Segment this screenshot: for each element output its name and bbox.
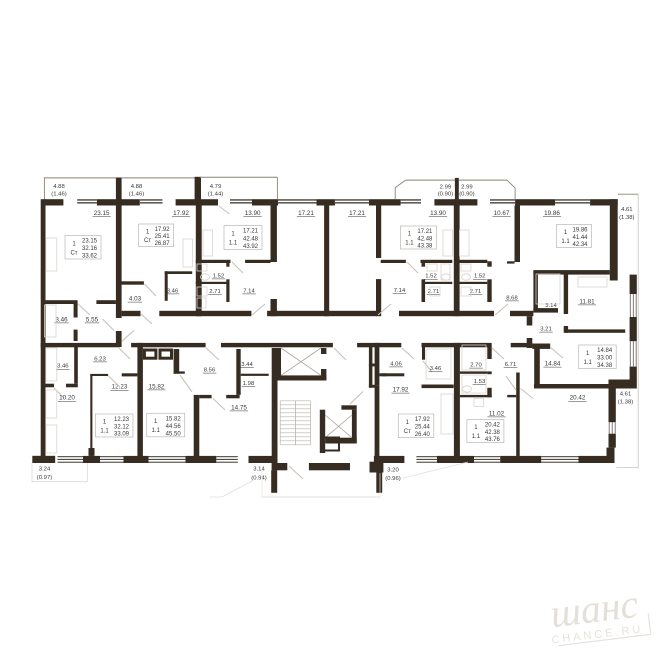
svg-text:41.44: 41.44 xyxy=(572,235,588,241)
svg-text:3.46: 3.46 xyxy=(57,364,69,370)
svg-text:19.86: 19.86 xyxy=(544,210,560,217)
svg-text:1.1: 1.1 xyxy=(100,428,109,434)
svg-text:8.68: 8.68 xyxy=(506,295,518,301)
svg-text:1.1: 1.1 xyxy=(152,428,161,434)
svg-text:26.40: 26.40 xyxy=(415,432,431,438)
svg-text:45.50: 45.50 xyxy=(166,431,182,437)
svg-text:17.21: 17.21 xyxy=(243,229,259,235)
svg-text:2.70: 2.70 xyxy=(470,363,482,369)
svg-text:17.21: 17.21 xyxy=(417,229,433,235)
svg-text:13.90: 13.90 xyxy=(245,210,261,217)
svg-text:1.1: 1.1 xyxy=(405,240,414,246)
svg-text:2.99: 2.99 xyxy=(461,184,472,190)
svg-text:42.34: 42.34 xyxy=(572,242,588,248)
svg-text:42.48: 42.48 xyxy=(417,236,433,242)
svg-text:3.14: 3.14 xyxy=(253,467,265,473)
svg-text:(0.96): (0.96) xyxy=(385,476,400,482)
svg-text:3.46: 3.46 xyxy=(167,288,179,294)
svg-text:14.75: 14.75 xyxy=(231,404,247,411)
svg-text:2.71: 2.71 xyxy=(428,289,439,295)
svg-text:6.23: 6.23 xyxy=(94,356,106,362)
svg-text:(1.38): (1.38) xyxy=(619,215,634,221)
svg-text:7.14: 7.14 xyxy=(394,288,406,294)
svg-text:14.84: 14.84 xyxy=(597,348,613,354)
svg-text:(0.90): (0.90) xyxy=(438,192,453,198)
svg-text:(0.94): (0.94) xyxy=(251,475,266,481)
svg-text:42.48: 42.48 xyxy=(243,236,259,242)
svg-text:11.81: 11.81 xyxy=(579,298,595,305)
svg-text:4.88: 4.88 xyxy=(131,184,143,190)
svg-text:1.1: 1.1 xyxy=(561,239,570,245)
svg-text:(1.38): (1.38) xyxy=(618,400,633,406)
svg-text:(1.46): (1.46) xyxy=(51,192,66,198)
svg-text:1.52: 1.52 xyxy=(425,274,436,280)
svg-text:20.42: 20.42 xyxy=(485,422,501,428)
svg-text:17.92: 17.92 xyxy=(155,227,171,233)
svg-text:12.23: 12.23 xyxy=(114,417,130,423)
svg-text:23.15: 23.15 xyxy=(94,210,110,217)
svg-text:14.84: 14.84 xyxy=(545,361,561,368)
svg-text:6.71: 6.71 xyxy=(505,362,516,368)
svg-text:43.76: 43.76 xyxy=(485,437,501,443)
svg-text:(1.46): (1.46) xyxy=(129,192,144,198)
svg-text:3.21: 3.21 xyxy=(540,327,551,333)
svg-text:43.38: 43.38 xyxy=(417,244,433,250)
svg-text:3.46: 3.46 xyxy=(55,316,68,323)
svg-text:1.52: 1.52 xyxy=(474,274,485,280)
svg-text:2.99: 2.99 xyxy=(440,184,451,190)
svg-text:13.90: 13.90 xyxy=(430,210,446,217)
svg-text:3.44: 3.44 xyxy=(241,362,253,368)
svg-text:15.82: 15.82 xyxy=(149,383,165,390)
svg-text:26.87: 26.87 xyxy=(155,241,171,247)
svg-text:17.92: 17.92 xyxy=(415,417,431,423)
svg-text:17.21: 17.21 xyxy=(298,210,314,217)
svg-text:2.71: 2.71 xyxy=(470,289,481,295)
svg-text:33.00: 33.00 xyxy=(597,356,613,362)
svg-text:23.15: 23.15 xyxy=(82,239,98,245)
svg-text:32.16: 32.16 xyxy=(82,246,98,252)
svg-text:19.86: 19.86 xyxy=(572,227,588,233)
svg-text:(0.97): (0.97) xyxy=(37,475,52,481)
svg-text:17.21: 17.21 xyxy=(349,210,365,217)
svg-text:17.92: 17.92 xyxy=(173,210,189,217)
svg-text:Ст: Ст xyxy=(144,238,151,244)
svg-text:34.38: 34.38 xyxy=(597,363,613,369)
svg-text:7.14: 7.14 xyxy=(243,288,255,294)
svg-text:15.82: 15.82 xyxy=(166,416,182,422)
svg-text:20.42: 20.42 xyxy=(570,395,586,402)
svg-text:4.79: 4.79 xyxy=(210,184,221,190)
svg-text:33.62: 33.62 xyxy=(82,254,98,260)
svg-text:3.46: 3.46 xyxy=(430,366,442,372)
svg-text:42.38: 42.38 xyxy=(485,430,501,436)
svg-text:4.06: 4.06 xyxy=(390,361,402,367)
svg-text:Ст: Ст xyxy=(70,250,77,256)
svg-text:25.44: 25.44 xyxy=(415,425,431,431)
svg-text:1.1: 1.1 xyxy=(229,241,238,247)
svg-text:17.92: 17.92 xyxy=(393,387,409,394)
svg-text:4.88: 4.88 xyxy=(53,184,65,190)
svg-text:4.61: 4.61 xyxy=(620,392,631,398)
svg-text:44.56: 44.56 xyxy=(166,424,182,430)
svg-text:3.20: 3.20 xyxy=(387,468,399,474)
svg-text:1.1: 1.1 xyxy=(472,434,481,440)
svg-text:4.03: 4.03 xyxy=(129,296,142,303)
svg-text:Ст: Ст xyxy=(404,429,411,435)
svg-text:(1.44): (1.44) xyxy=(208,192,223,198)
svg-text:25.41: 25.41 xyxy=(155,234,171,240)
svg-text:1.52: 1.52 xyxy=(213,273,224,279)
svg-text:43.92: 43.92 xyxy=(243,244,259,250)
svg-text:1.98: 1.98 xyxy=(243,381,255,387)
svg-text:33.09: 33.09 xyxy=(114,432,130,438)
svg-text:2.71: 2.71 xyxy=(209,289,220,295)
svg-text:5.55: 5.55 xyxy=(86,316,99,323)
svg-text:10.67: 10.67 xyxy=(494,210,510,217)
svg-text:8.56: 8.56 xyxy=(204,368,216,374)
svg-text:4.61: 4.61 xyxy=(621,207,632,213)
svg-text:1.1: 1.1 xyxy=(584,360,593,366)
svg-text:32.12: 32.12 xyxy=(114,424,130,430)
svg-text:10.20: 10.20 xyxy=(59,395,75,402)
svg-text:1.53: 1.53 xyxy=(474,379,486,385)
svg-text:3.24: 3.24 xyxy=(39,467,51,473)
svg-text:11.02: 11.02 xyxy=(489,410,505,417)
svg-text:(0.90): (0.90) xyxy=(459,192,474,198)
